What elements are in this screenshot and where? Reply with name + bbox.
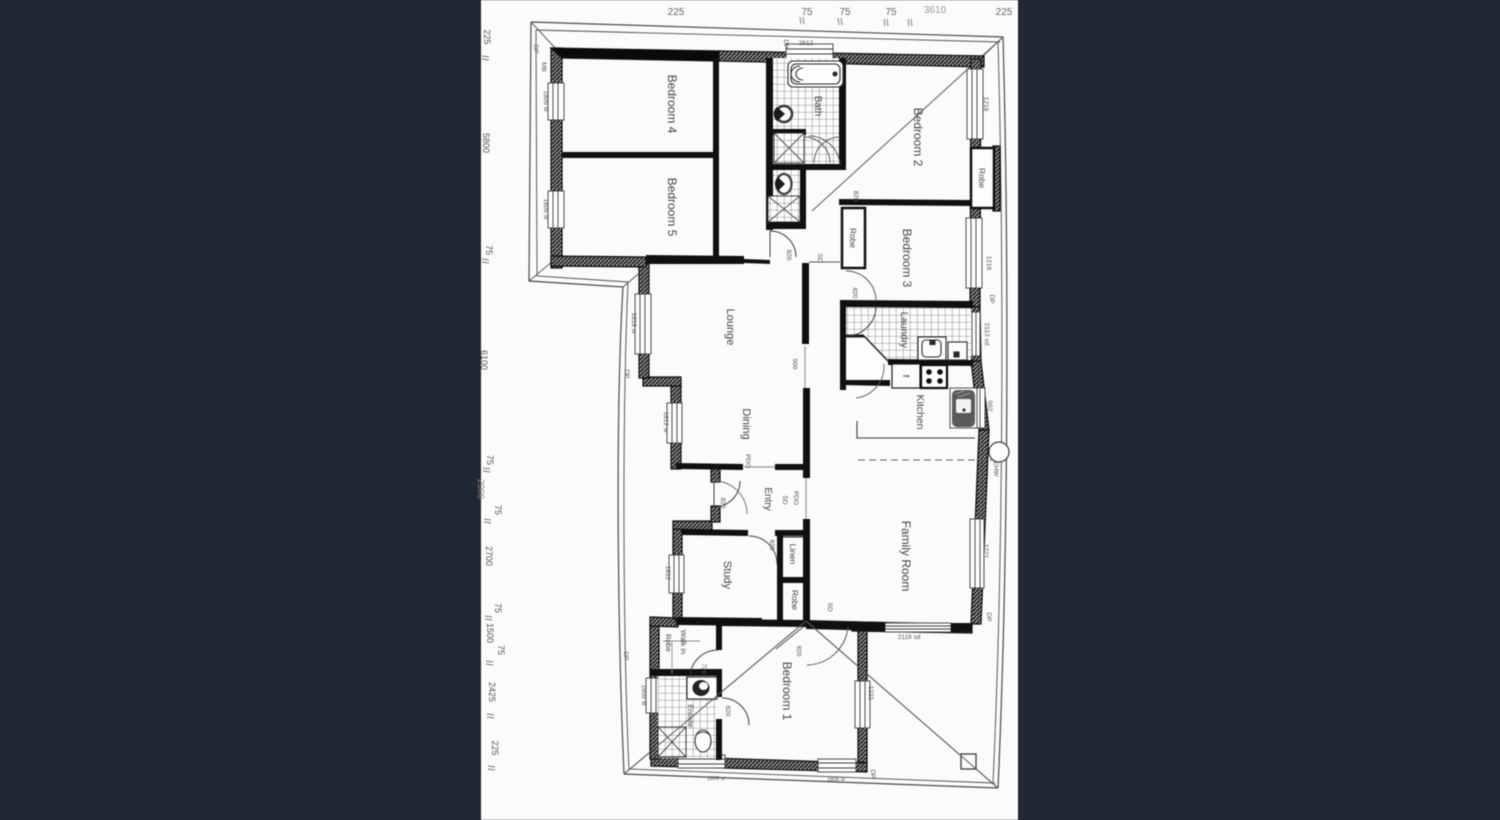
svg-text:1818 w: 1818 w bbox=[630, 313, 637, 334]
svg-text:1812: 1812 bbox=[664, 566, 671, 581]
svg-text:Robe: Robe bbox=[977, 168, 987, 189]
svg-text:Robe: Robe bbox=[790, 590, 800, 611]
svg-text:2000: 2000 bbox=[476, 479, 486, 499]
svg-text:5800: 5800 bbox=[481, 133, 491, 153]
svg-text:Study: Study bbox=[721, 561, 733, 590]
svg-text:900: 900 bbox=[791, 359, 798, 370]
svg-text:DP: DP bbox=[532, 44, 539, 53]
svg-text:2700: 2700 bbox=[484, 546, 494, 566]
svg-text:DP: DP bbox=[988, 294, 995, 303]
svg-text:3610: 3610 bbox=[924, 5, 947, 16]
svg-text:DP: DP bbox=[869, 769, 876, 778]
svg-text:DP: DP bbox=[622, 651, 629, 660]
svg-text:DP: DP bbox=[985, 612, 992, 621]
svg-text:2113 sd: 2113 sd bbox=[983, 323, 990, 346]
svg-text:1809 w: 1809 w bbox=[542, 91, 549, 112]
svg-text:Lounge: Lounge bbox=[724, 309, 736, 346]
svg-text:Bedroom 2: Bedroom 2 bbox=[911, 108, 925, 167]
svg-text:SD: SD bbox=[826, 602, 833, 611]
svg-text:Laundry: Laundry bbox=[898, 312, 909, 348]
svg-text:SD: SD bbox=[781, 495, 788, 504]
svg-text:PDO: PDO bbox=[792, 491, 799, 505]
svg-text:75: 75 bbox=[801, 7, 813, 18]
svg-text:820: 820 bbox=[768, 540, 775, 551]
svg-text:75: 75 bbox=[485, 455, 495, 465]
svg-text:75: 75 bbox=[496, 645, 506, 655]
svg-text:Entry: Entry bbox=[762, 487, 773, 510]
svg-text:2116 sd: 2116 sd bbox=[898, 634, 921, 641]
svg-text:Bedroom 4: Bedroom 4 bbox=[665, 75, 679, 134]
svg-text:820: 820 bbox=[852, 191, 859, 202]
svg-text:992: 992 bbox=[986, 401, 993, 412]
svg-text:1806 w: 1806 w bbox=[827, 777, 845, 783]
svg-text:Linen: Linen bbox=[788, 544, 798, 565]
svg-text:Dining: Dining bbox=[740, 408, 752, 439]
svg-text:Bedroom 1: Bedroom 1 bbox=[780, 662, 794, 721]
svg-text:225: 225 bbox=[490, 740, 500, 755]
svg-text:1221: 1221 bbox=[867, 686, 874, 701]
svg-text:75: 75 bbox=[484, 245, 494, 255]
svg-text:MB: MB bbox=[540, 62, 547, 72]
svg-text:820: 820 bbox=[719, 498, 726, 509]
svg-text:75: 75 bbox=[885, 7, 897, 18]
svg-text:Walk in: Walk in bbox=[679, 630, 688, 654]
svg-text:75: 75 bbox=[493, 603, 503, 613]
svg-text:75: 75 bbox=[493, 505, 503, 515]
svg-text:Ensuite: Ensuite bbox=[686, 704, 693, 727]
svg-text:DP: DP bbox=[782, 39, 789, 48]
svg-text:720: 720 bbox=[700, 664, 707, 675]
svg-text:1218: 1218 bbox=[985, 256, 992, 271]
svg-text:Bedroom 5: Bedroom 5 bbox=[665, 178, 679, 237]
svg-text:Bath: Bath bbox=[812, 96, 823, 117]
svg-text:1809 w: 1809 w bbox=[707, 776, 725, 782]
svg-text:1812 w: 1812 w bbox=[662, 412, 669, 433]
svg-text:Bedroom 3: Bedroom 3 bbox=[900, 229, 914, 288]
svg-text:1809 w: 1809 w bbox=[640, 685, 647, 706]
svg-text:225: 225 bbox=[996, 7, 1013, 18]
svg-text:1500: 1500 bbox=[485, 623, 495, 643]
svg-text:1221: 1221 bbox=[982, 544, 989, 559]
svg-text:SD: SD bbox=[816, 253, 823, 262]
svg-text:75: 75 bbox=[839, 7, 851, 18]
svg-text:820: 820 bbox=[851, 288, 858, 299]
svg-text:EHW: EHW bbox=[992, 461, 999, 477]
svg-text:DP: DP bbox=[623, 369, 630, 378]
svg-text:225: 225 bbox=[668, 7, 685, 18]
svg-text:2425: 2425 bbox=[487, 682, 497, 702]
svg-text:6100: 6100 bbox=[479, 350, 489, 370]
svg-text:225: 225 bbox=[482, 29, 492, 44]
svg-text:1809 w: 1809 w bbox=[542, 199, 549, 220]
svg-text:820: 820 bbox=[785, 250, 792, 261]
svg-text:Kitchen: Kitchen bbox=[914, 394, 926, 429]
svg-text:1218: 1218 bbox=[982, 97, 989, 112]
svg-text:820: 820 bbox=[795, 646, 802, 657]
svg-text:Robe: Robe bbox=[664, 634, 673, 652]
svg-text:2612: 2612 bbox=[799, 40, 814, 47]
svg-text:PDO: PDO bbox=[744, 454, 751, 468]
svg-text:Robe: Robe bbox=[848, 228, 858, 249]
svg-text:820: 820 bbox=[724, 706, 731, 717]
svg-text:Family Room: Family Room bbox=[899, 521, 913, 592]
